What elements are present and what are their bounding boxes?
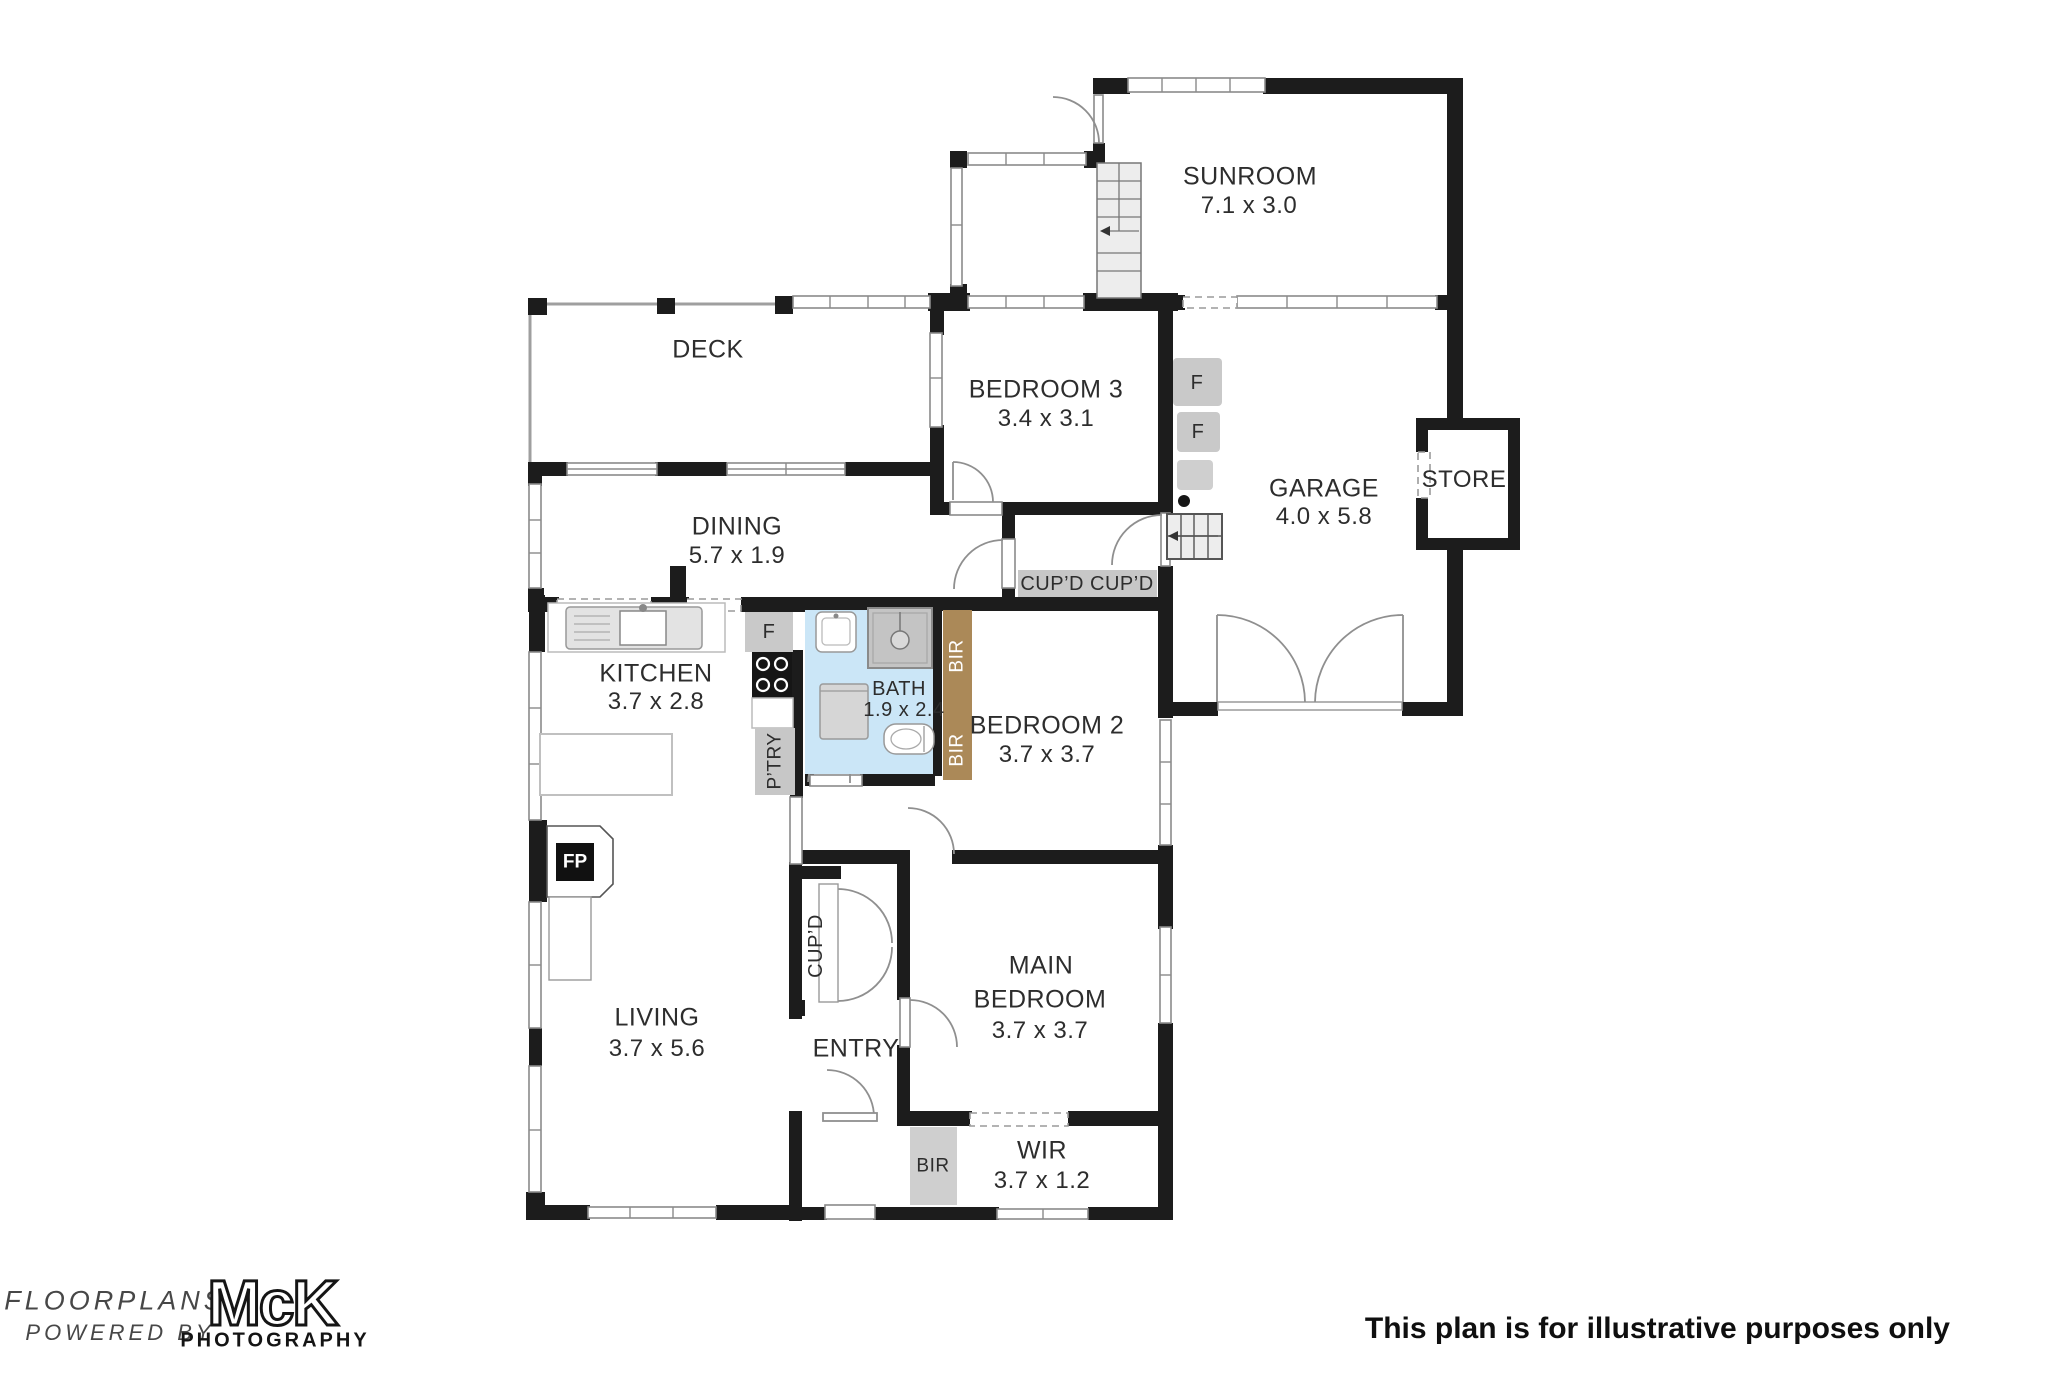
entry-cupboard-door-arc-bottom — [838, 947, 892, 1001]
disclaimer-text: This plan is for illustrative purposes o… — [1365, 1312, 1950, 1346]
garage-door-threshold — [1218, 702, 1402, 710]
room-label-store: STORE — [1422, 468, 1507, 492]
room-dims-main-bedroom: 3.7 x 3.7 — [992, 1019, 1089, 1043]
room-dims-bath: 1.9 x 2.4 — [863, 700, 944, 720]
room-dims-bedroom3: 3.4 x 3.1 — [998, 407, 1095, 431]
front-door-arc — [827, 1070, 874, 1117]
label-bir-1: BIR — [948, 639, 967, 672]
logo-floorplans-text: FLOORPLANS — [4, 1286, 226, 1317]
room-label-deck: DECK — [672, 338, 743, 363]
label-cupboard-entry: CUP’D — [806, 914, 826, 978]
logo-photography: PHOTOGRAPHY — [180, 1330, 369, 1353]
label-fridge-garage-1: F — [1191, 373, 1204, 393]
main-bedroom-door-arc — [910, 1000, 957, 1047]
porch-stairs — [1097, 163, 1141, 298]
room-label-garage: GARAGE — [1269, 477, 1379, 502]
room-label-dining: DINING — [692, 515, 783, 540]
entry-cupboard-door-arc-top — [838, 889, 892, 943]
room-dims-kitchen: 3.7 x 2.8 — [608, 690, 705, 714]
kitchen-bench — [752, 698, 793, 728]
room-dims-bedroom2: 3.7 x 3.7 — [999, 743, 1096, 767]
label-fireplace: FP — [563, 853, 587, 872]
room-label-living: LIVING — [615, 1006, 700, 1031]
bedroom3-door-arc — [953, 462, 993, 502]
porch-door-arc — [1053, 97, 1099, 143]
room-dims-wir: 3.7 x 1.2 — [994, 1169, 1091, 1193]
room-label-main-bedroom-1: MAIN — [1009, 954, 1074, 979]
garage-dot — [1178, 495, 1190, 507]
kitchen-island — [540, 734, 672, 795]
shower-head-icon — [891, 631, 909, 649]
room-label-sunroom: SUNROOM — [1183, 165, 1317, 190]
label-cupboard-double: CUP’D CUP’D — [1020, 574, 1153, 594]
hall-dining-door-arc — [954, 540, 1003, 589]
hall-stairs-door-arc — [1112, 515, 1162, 565]
room-dims-sunroom: 7.1 x 3.0 — [1201, 194, 1298, 218]
garage-door-left-arc — [1217, 615, 1305, 702]
room-dims-dining: 5.7 x 1.9 — [689, 544, 786, 568]
room-label-bath: BATH — [872, 679, 926, 699]
room-dims-garage: 4.0 x 5.8 — [1276, 505, 1373, 529]
room-label-main-bedroom-2: BEDROOM — [974, 988, 1107, 1013]
label-pantry: P’TRY — [766, 732, 785, 789]
room-label-entry: ENTRY — [813, 1037, 900, 1062]
room-label-wir: WIR — [1017, 1139, 1067, 1164]
label-fridge-kitchen: F — [763, 622, 776, 642]
bedroom2-door-arc — [908, 808, 954, 854]
faucet-icon — [639, 604, 647, 612]
appliance-box — [1177, 460, 1213, 490]
label-fridge-garage-2: F — [1192, 422, 1205, 442]
bath-cabinet — [820, 684, 868, 739]
room-label-bedroom3: BEDROOM 3 — [969, 378, 1124, 403]
label-bir-2: BIR — [948, 733, 967, 766]
deck-rails — [530, 304, 775, 462]
room-label-kitchen: KITCHEN — [599, 662, 712, 687]
label-bir-wir: BIR — [916, 1157, 949, 1176]
floorplan-page: DECK DINING 5.7 x 1.9 KITCHEN 3.7 x 2.8 … — [0, 0, 2048, 1389]
fireplace-hearth — [549, 897, 591, 980]
fireplace — [547, 826, 613, 980]
garage-stairs — [1167, 495, 1222, 559]
room-label-bedroom2: BEDROOM 2 — [970, 714, 1125, 739]
kitchen-sink-bowl — [620, 611, 666, 645]
stove — [752, 652, 792, 698]
garage-door-right-arc — [1315, 615, 1403, 702]
room-dims-living: 3.7 x 5.6 — [609, 1037, 706, 1061]
